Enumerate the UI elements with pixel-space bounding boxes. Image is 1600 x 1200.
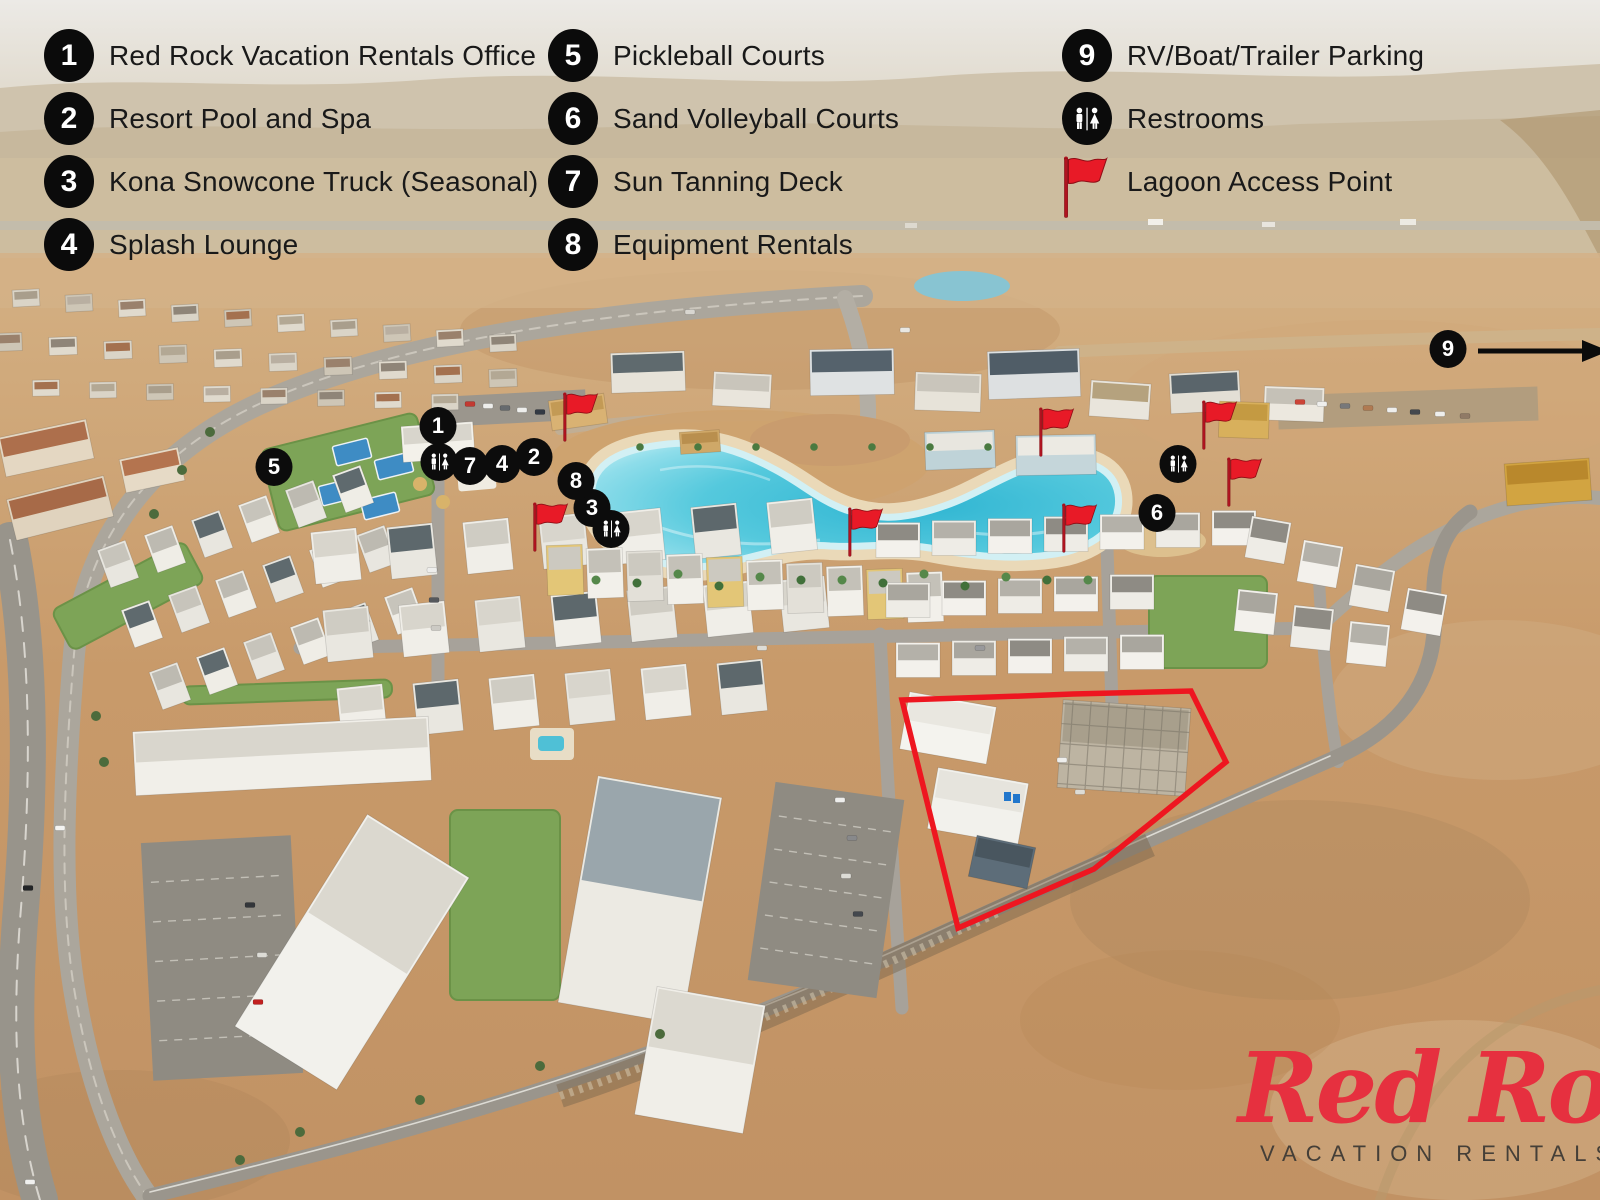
map-restroom-icon-3 — [1160, 445, 1197, 483]
legend-label: Splash Lounge — [109, 229, 298, 261]
map-restroom-icon-2 — [593, 510, 630, 548]
legend-label: Kona Snowcone Truck (Seasonal) — [109, 166, 538, 198]
legend-item-kona-snowcone-truck-seasonal: 3Kona Snowcone Truck (Seasonal) — [44, 155, 538, 208]
legend-label: Sand Volleyball Courts — [613, 103, 899, 135]
lagoon-access-flag-icon-5 — [1200, 398, 1238, 457]
map-marker-9: 9 — [1430, 330, 1467, 368]
map-marker-2: 2 — [516, 438, 553, 476]
lagoon-access-flag-icon-3 — [846, 505, 884, 564]
legend-item-lagoon-access-point: Lagoon Access Point — [1062, 155, 1424, 208]
legend-number-badge-6: 6 — [548, 92, 598, 145]
legend-item-sun-tanning-deck: 7Sun Tanning Deck — [548, 155, 899, 208]
legend-item-rv-boat-trailer-parking: 9RV/Boat/Trailer Parking — [1062, 29, 1424, 82]
lagoon-access-flag-icon-6 — [1225, 455, 1263, 514]
legend-item-resort-pool-and-spa: 2Resort Pool and Spa — [44, 92, 538, 145]
legend-number-badge-1: 1 — [44, 29, 94, 82]
map-marker-6: 6 — [1139, 494, 1176, 532]
legend-label: Lagoon Access Point — [1127, 166, 1392, 198]
map-marker-4: 4 — [484, 445, 521, 483]
legend-column-3: 9RV/Boat/Trailer Parking Restrooms Lagoo… — [1062, 29, 1424, 208]
legend-item-equipment-rentals: 8Equipment Rentals — [548, 218, 899, 271]
map-legend: 1Red Rock Vacation Rentals Office2Resort… — [0, 0, 1600, 280]
legend-label: Resort Pool and Spa — [109, 103, 371, 135]
resort-aerial-map: 1Red Rock Vacation Rentals Office2Resort… — [0, 0, 1600, 1200]
red-flag-icon — [1062, 155, 1112, 208]
legend-number-badge-4: 4 — [44, 218, 94, 271]
brand-logo: Red Rock VACATION RENTALS — [1238, 1040, 1600, 1167]
legend-number-badge-5: 5 — [548, 29, 598, 82]
legend-item-sand-volleyball-courts: 6Sand Volleyball Courts — [548, 92, 899, 145]
lagoon-access-flag-icon-1 — [561, 390, 599, 449]
map-marker-5: 5 — [256, 448, 293, 486]
legend-number-badge-3: 3 — [44, 155, 94, 208]
legend-number-badge-7: 7 — [548, 155, 598, 208]
brand-logo-script: Red Rock — [1238, 1040, 1600, 1137]
legend-item-pickleball-courts: 5Pickleball Courts — [548, 29, 899, 82]
legend-item-splash-lounge: 4Splash Lounge — [44, 218, 538, 271]
legend-label: Pickleball Courts — [613, 40, 825, 72]
direction-arrow-icon — [1478, 340, 1600, 367]
restroom-icon — [1062, 92, 1112, 145]
legend-number-badge-8: 8 — [548, 218, 598, 271]
legend-label: Restrooms — [1127, 103, 1264, 135]
legend-label: Red Rock Vacation Rentals Office — [109, 40, 536, 72]
legend-label: Sun Tanning Deck — [613, 166, 843, 198]
legend-column-1: 1Red Rock Vacation Rentals Office2Resort… — [44, 29, 538, 271]
legend-column-2: 5Pickleball Courts6Sand Volleyball Court… — [548, 29, 899, 271]
legend-label: RV/Boat/Trailer Parking — [1127, 40, 1424, 72]
legend-item-red-rock-vacation-rentals-office: 1Red Rock Vacation Rentals Office — [44, 29, 538, 82]
legend-number-badge-2: 2 — [44, 92, 94, 145]
lagoon-access-flag-icon-4 — [1037, 405, 1075, 464]
map-restroom-icon-1 — [421, 443, 458, 481]
lagoon-access-flag-icon-2 — [531, 500, 569, 559]
lagoon-access-flag-icon-7 — [1060, 501, 1098, 560]
legend-item-restrooms: Restrooms — [1062, 92, 1424, 145]
legend-label: Equipment Rentals — [613, 229, 853, 261]
map-marker-8: 8 — [558, 462, 595, 500]
map-marker-1: 1 — [420, 407, 457, 445]
legend-number-badge-9: 9 — [1062, 29, 1112, 82]
brand-logo-subtitle: VACATION RENTALS — [1260, 1141, 1600, 1167]
